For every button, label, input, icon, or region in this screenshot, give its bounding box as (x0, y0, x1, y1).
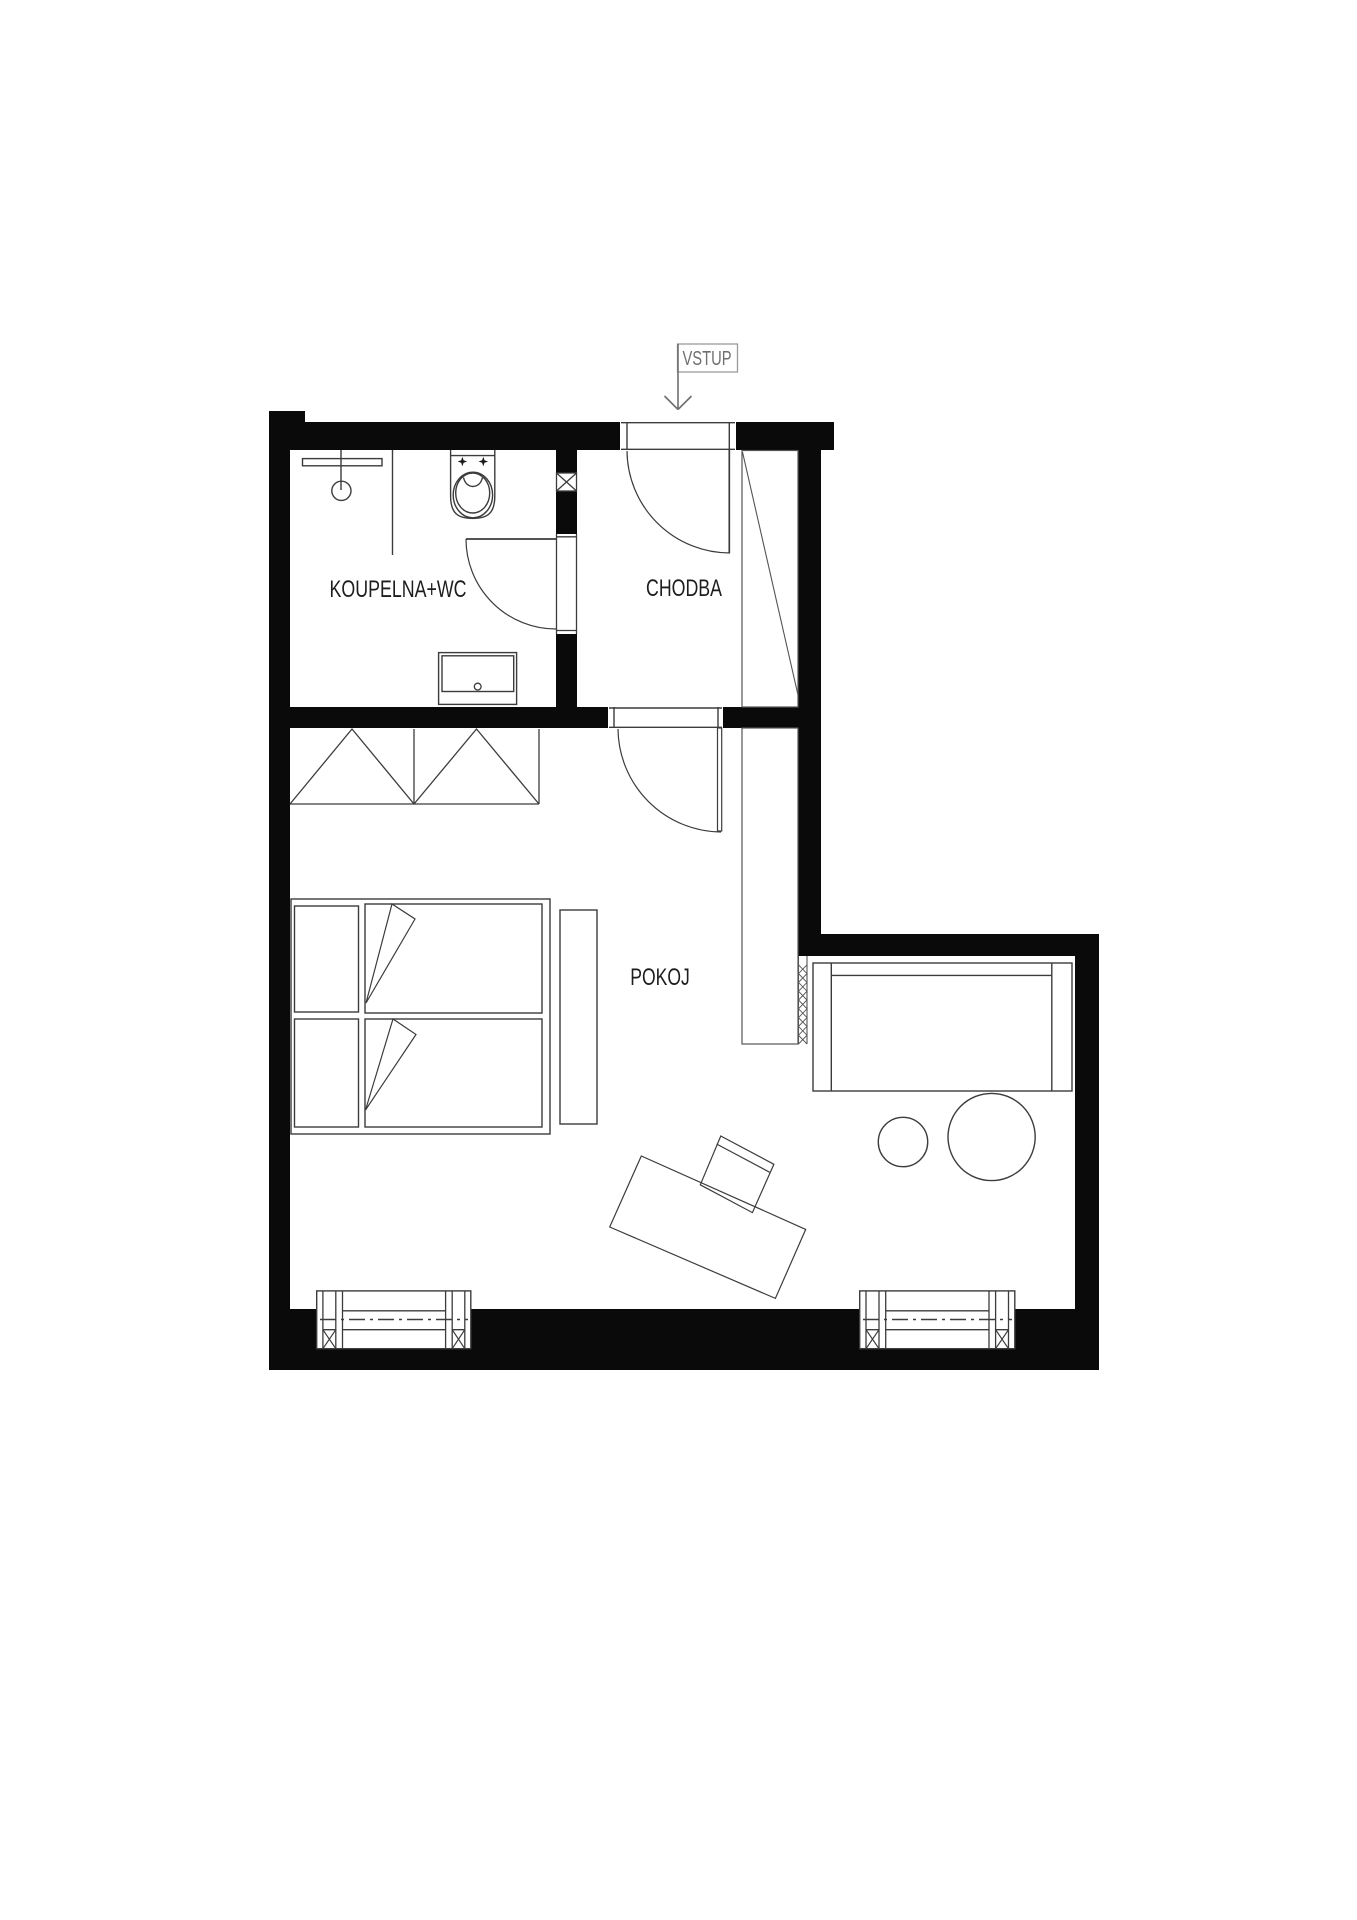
svg-text:KOUPELNA+WC: KOUPELNA+WC (330, 576, 467, 603)
svg-text:CHODBA: CHODBA (646, 575, 722, 602)
svg-text:VSTUP: VSTUP (683, 348, 732, 370)
svg-text:POKOJ: POKOJ (630, 964, 690, 991)
